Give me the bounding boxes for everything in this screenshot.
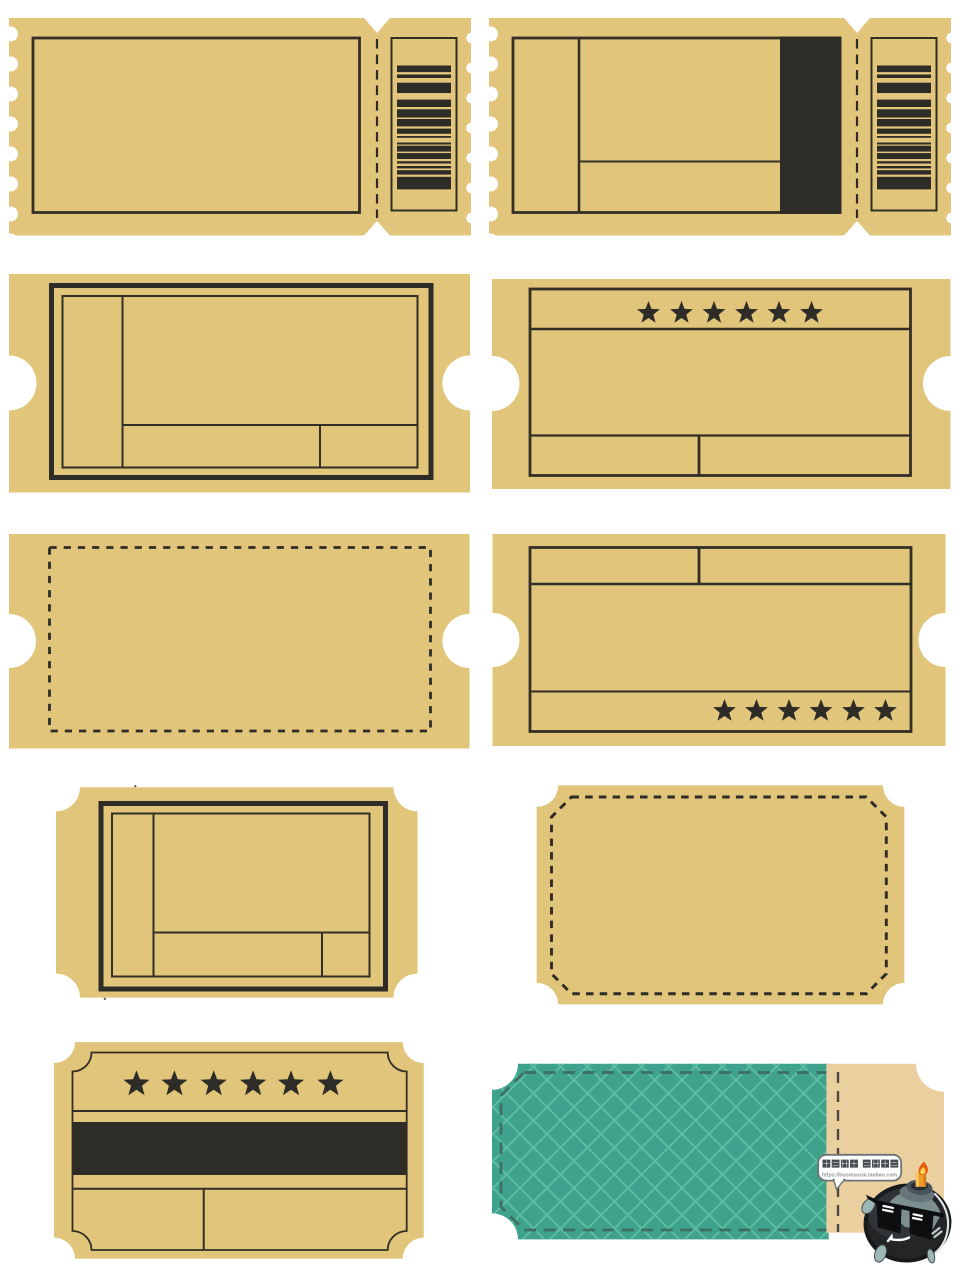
svg-text:https://boomsucai.taobao.com: https://boomsucai.taobao.com <box>822 1172 897 1178</box>
